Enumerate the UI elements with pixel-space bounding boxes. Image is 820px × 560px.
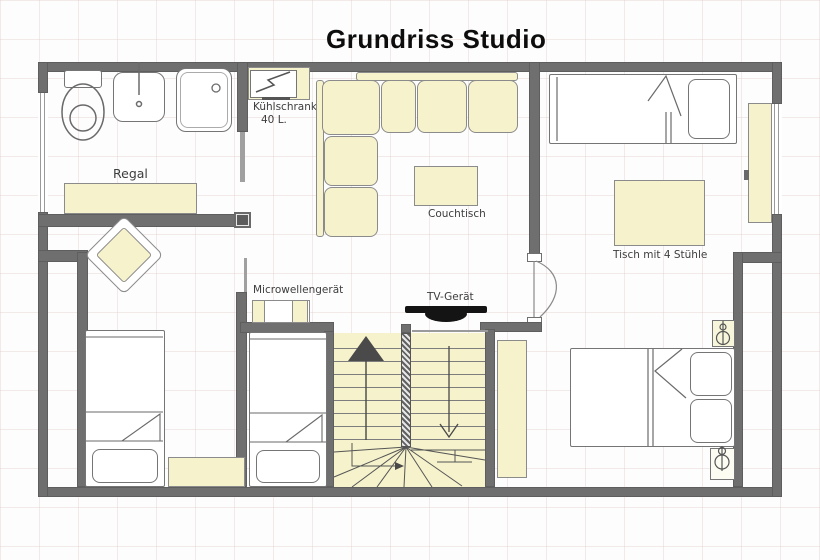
wardrobe-bedroom <box>497 340 527 478</box>
microwave-cell-right <box>292 300 308 323</box>
microwave-label: Microwellengerät <box>253 284 343 296</box>
sofa-cushion <box>381 80 416 133</box>
door-leaf-left-bedroom <box>244 258 247 294</box>
tv-label: TV-Gerät <box>427 291 474 303</box>
window-left <box>38 93 48 212</box>
wall-shelf-room <box>38 214 236 227</box>
stairs-divider-hatch <box>401 333 411 447</box>
nightstand-bottom <box>710 448 735 480</box>
coffee-table-label: Couchtisch <box>428 208 486 220</box>
sofa-cushion <box>324 187 378 237</box>
toilet-icon <box>62 84 104 140</box>
microwave-cell-left <box>252 300 265 323</box>
fridge-label-line1: Kühlschrank <box>253 101 317 113</box>
coffee-table <box>414 166 478 206</box>
sofa-cushion <box>417 80 467 133</box>
pillow <box>690 399 732 443</box>
stairs-entry-edge <box>412 330 488 332</box>
wall-junction-box <box>234 212 251 228</box>
wall-right-upper <box>772 62 782 104</box>
stairs-down-flight <box>411 336 485 440</box>
sink-icon <box>113 72 165 122</box>
shower-tray <box>180 72 228 128</box>
fridge-base-mark <box>262 97 290 100</box>
sofa-cushion <box>324 136 378 186</box>
wall-top <box>38 62 782 72</box>
dining-table <box>614 180 705 246</box>
window-right <box>772 104 782 214</box>
shelf <box>64 183 197 214</box>
wardrobe-right <box>748 103 772 223</box>
pillow <box>690 352 732 396</box>
wall-bottom <box>38 487 782 497</box>
pillow <box>256 450 320 483</box>
wall-bathroom-thin <box>240 132 245 182</box>
pillow <box>92 449 158 483</box>
wall-left-upper <box>38 62 48 93</box>
door-swing <box>534 261 556 317</box>
wall-end-cap-top <box>527 253 542 262</box>
stairs-up-flight <box>334 336 401 444</box>
sofa-cushion <box>468 80 518 133</box>
stairs-divider-stub <box>401 324 411 333</box>
sofa-corner-cushion <box>322 80 380 135</box>
dining-table-label: Tisch mit 4 Stühle <box>613 249 707 261</box>
toilet-tank <box>64 70 102 88</box>
wall-stairs-right <box>485 329 495 487</box>
fridge-label-line2: 40 L. <box>261 114 287 126</box>
tv-icon <box>405 306 487 322</box>
fridge-zigzag-icon <box>250 70 297 98</box>
shelf-label: Regal <box>113 167 148 181</box>
page-title: Grundriss Studio <box>326 24 546 55</box>
pillow <box>688 79 730 139</box>
wall-bathroom-vertical <box>237 62 248 132</box>
wardrobe-handle-mark <box>744 170 749 180</box>
nightstand-top <box>712 320 735 347</box>
bedside-table-between-beds <box>168 457 245 487</box>
floor-plan: Grundriss Studio Kühlschrank 40 L. Micro… <box>0 0 820 560</box>
wall-living-room <box>529 62 540 255</box>
